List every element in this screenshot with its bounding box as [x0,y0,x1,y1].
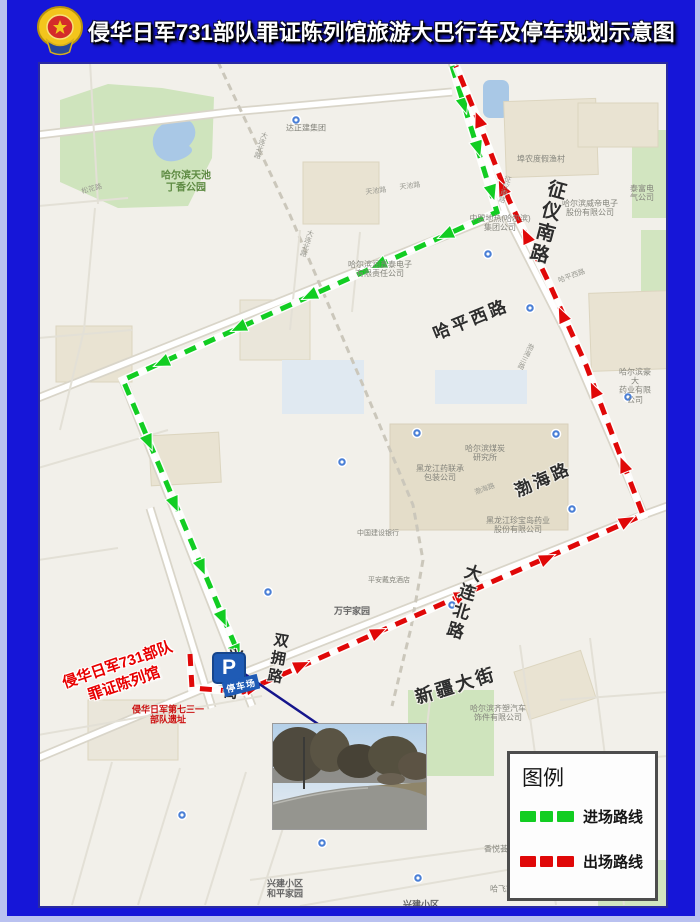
transit-stop-icon-dot [416,876,419,879]
police-badge-icon [34,6,86,56]
entry-route-swatch [520,811,574,822]
legend-exit-label: 出场路线 [583,851,643,872]
legend-entry-label: 进场路线 [583,806,643,827]
transit-stop-icon-dot [570,507,573,510]
page-title: 侵华日军731部队罪证陈列馆旅游大巴行车及停车规划示意图 [88,15,675,47]
transit-stop-icon-dot [294,118,297,121]
transit-stop-icon-dot [528,306,531,309]
legend-panel: 图例 进场路线 出场路线 [507,751,658,901]
transit-stop-icon-dot [340,460,343,463]
legend-title: 图例 [522,762,645,792]
transit-stop-icon-dot [626,395,629,398]
transit-stop-icon-dot [534,246,537,249]
title-bar: 侵华日军731部队罪证陈列馆旅游大巴行车及停车规划示意图 [34,5,670,57]
frame-edge-left [0,0,7,922]
transit-stop-icon-dot [486,252,489,255]
frame-edge-right [695,0,700,922]
poster-page: 侵华日军731部队罪证陈列馆旅游大巴行车及停车规划示意图 [0,0,700,922]
transit-stop-icon-dot [450,603,453,606]
transit-stop-icon-dot [180,813,183,816]
legend-exit-row: 出场路线 [520,851,645,872]
transit-stop-icon-dot [266,590,269,593]
legend-entry-row: 进场路线 [520,806,645,827]
frame-edge-bottom [0,916,700,922]
transit-stop-icon-dot [554,432,557,435]
streetview-photo [272,723,427,830]
parking-letter: P [222,656,236,680]
exit-route-swatch [520,856,574,867]
transit-stop-icon-dot [415,431,418,434]
transit-stop-icon-dot [320,841,323,844]
map-panel: 哈尔滨天池 丁香公园达正建集团埠农度假渔村泰富电气公司哈尔滨威帝电子 股份有限公… [38,62,668,908]
